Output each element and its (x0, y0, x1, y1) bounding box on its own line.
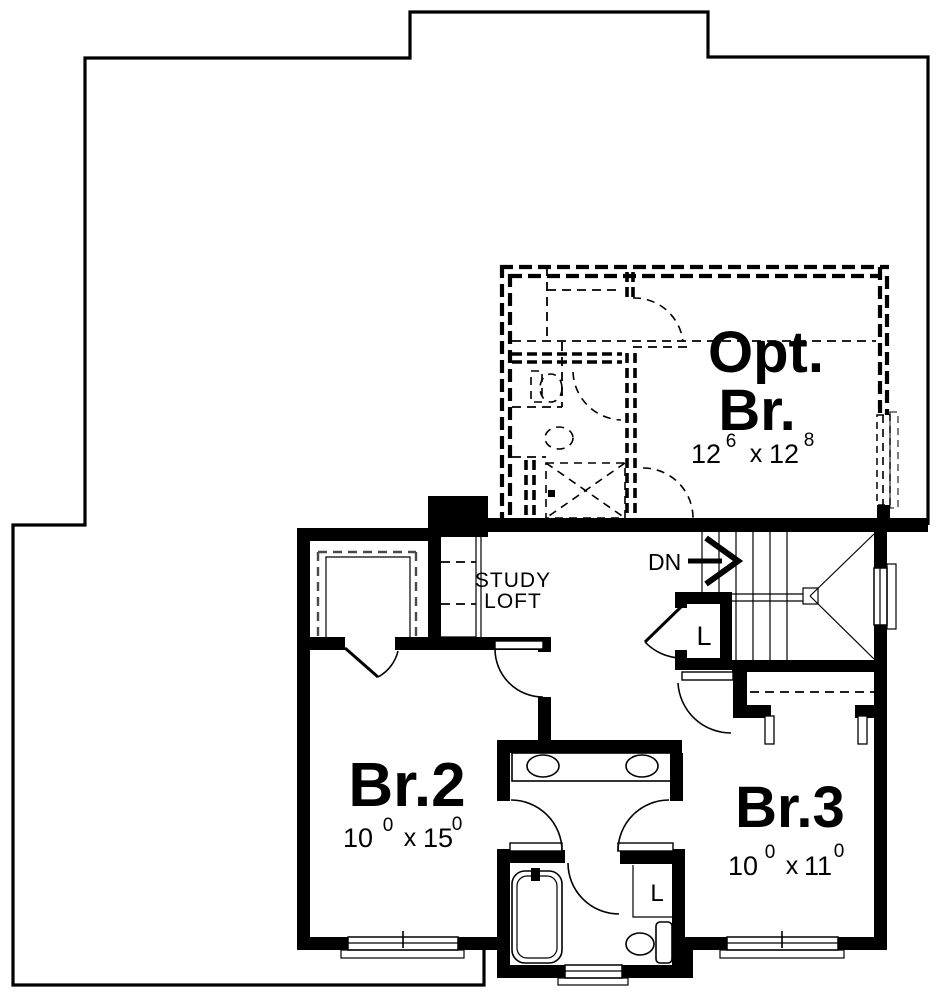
svg-text:x: x (750, 440, 763, 468)
opt-window (877, 412, 898, 520)
br3-dimensions: 10 0 x 11 0 (728, 841, 844, 881)
chase-wall (428, 537, 441, 650)
opt-br-label-line1: Opt. (708, 320, 824, 385)
study-loft-label-line1: STUDY (475, 569, 551, 592)
study-loft-label-line2: LOFT (484, 590, 542, 613)
svg-text:0: 0 (383, 815, 394, 836)
opt-door-arc-3 (643, 468, 693, 518)
toilet (626, 922, 672, 963)
tub-faucet (531, 868, 540, 881)
svg-text:6: 6 (726, 431, 737, 452)
optional-bedroom-area: Opt. Br. 12 6 x 12 8 (500, 265, 898, 520)
br2-label: Br.2 (348, 751, 465, 820)
opt-sink (545, 427, 573, 449)
opt-door-arc-1 (633, 298, 683, 342)
svg-text:8: 8 (804, 430, 815, 451)
vanity (512, 753, 672, 781)
down-label: DN (648, 549, 681, 575)
svg-text:0: 0 (834, 841, 845, 862)
br2-closet-door (345, 648, 398, 677)
br2-door (495, 641, 543, 697)
svg-text:0: 0 (452, 814, 463, 835)
floor-plan-canvas: Opt. Br. 12 6 x 12 8 (0, 0, 940, 1000)
opt-bath-partitions (512, 267, 876, 518)
stair-landing-window (874, 564, 896, 629)
bath-compartment-door (568, 863, 619, 914)
opt-shower (546, 463, 625, 518)
opt-toilet (531, 371, 562, 402)
br3-window (720, 931, 844, 958)
br3-label: Br.3 (735, 775, 845, 840)
svg-text:x: x (404, 824, 417, 852)
hall-linen-label: L (696, 621, 711, 651)
br3-door (678, 672, 733, 733)
opt-door-arc-2 (573, 372, 621, 420)
svg-text:12: 12 (769, 439, 799, 469)
svg-text:11: 11 (804, 851, 832, 881)
winder-line-upper (810, 534, 874, 596)
bath-door-left (510, 800, 562, 851)
br3-closet-opening (750, 692, 884, 744)
svg-text:10: 10 (728, 851, 758, 881)
svg-text:x: x (786, 852, 799, 880)
svg-text:15: 15 (423, 823, 453, 853)
chimney-chase (428, 496, 488, 537)
svg-text:0: 0 (765, 842, 776, 863)
bath-door-right (618, 800, 673, 851)
bath-window (558, 965, 628, 985)
floor-plan-page: Opt. Br. 12 6 x 12 8 (0, 0, 940, 1000)
down-arrow (688, 538, 738, 584)
bathtub (512, 868, 562, 963)
bath-linen-label: L (650, 880, 663, 907)
winder-line-lower (810, 596, 874, 659)
exterior-walls (297, 496, 928, 978)
svg-text:10: 10 (343, 823, 373, 853)
br2-window (341, 931, 464, 958)
br2-closet (318, 552, 416, 637)
svg-text:12: 12 (691, 439, 721, 469)
